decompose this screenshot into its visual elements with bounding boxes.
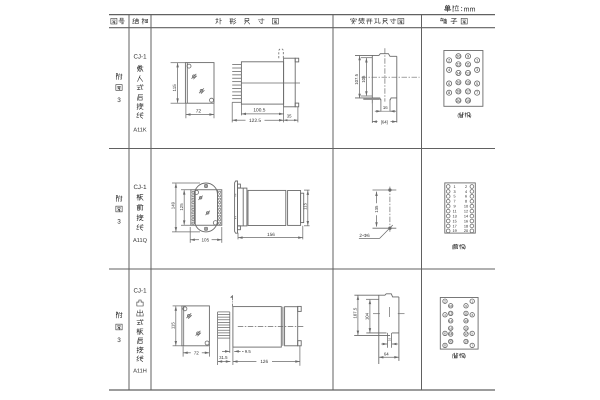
svg-text:64: 64 bbox=[384, 352, 389, 357]
svg-text:13: 13 bbox=[464, 319, 468, 323]
svg-text:3: 3 bbox=[117, 219, 121, 226]
svg-text:125: 125 bbox=[179, 203, 184, 211]
svg-text:104: 104 bbox=[365, 312, 370, 320]
svg-text:15: 15 bbox=[464, 326, 468, 330]
svg-text:A11K: A11K bbox=[133, 128, 147, 134]
svg-text:5: 5 bbox=[471, 331, 473, 335]
svg-text:19: 19 bbox=[464, 340, 468, 344]
svg-text:10: 10 bbox=[449, 304, 453, 308]
svg-text:149: 149 bbox=[171, 201, 176, 209]
svg-text:18: 18 bbox=[456, 90, 460, 94]
svg-text:): ) bbox=[470, 113, 472, 119]
svg-text:9.5: 9.5 bbox=[245, 349, 252, 354]
svg-text:1: 1 bbox=[471, 299, 473, 303]
svg-text:115: 115 bbox=[302, 202, 307, 209]
svg-text:(: ( bbox=[457, 113, 459, 119]
svg-text:16: 16 bbox=[456, 81, 460, 85]
svg-text:5: 5 bbox=[476, 82, 478, 86]
svg-text:16: 16 bbox=[383, 105, 388, 110]
svg-text:11: 11 bbox=[464, 311, 467, 315]
svg-text:20: 20 bbox=[464, 229, 468, 233]
svg-text:3: 3 bbox=[471, 313, 473, 317]
svg-text:107.5: 107.5 bbox=[353, 307, 358, 318]
svg-text:1: 1 bbox=[476, 59, 478, 63]
svg-text:72: 72 bbox=[196, 108, 202, 114]
svg-text:17: 17 bbox=[464, 332, 468, 336]
svg-text:14: 14 bbox=[464, 214, 468, 218]
svg-text:19: 19 bbox=[466, 99, 470, 103]
svg-text:115: 115 bbox=[170, 322, 175, 329]
svg-text:8: 8 bbox=[448, 91, 450, 95]
svg-text:16: 16 bbox=[449, 326, 453, 330]
svg-text:15: 15 bbox=[466, 81, 470, 85]
svg-text:18: 18 bbox=[449, 332, 453, 336]
svg-text:[64]: [64] bbox=[381, 119, 388, 124]
svg-text:156: 156 bbox=[267, 232, 275, 237]
svg-text:17: 17 bbox=[452, 224, 456, 228]
svg-text:): ) bbox=[464, 245, 466, 251]
svg-text:20: 20 bbox=[456, 99, 460, 103]
svg-text:3: 3 bbox=[476, 68, 478, 72]
svg-text:7: 7 bbox=[471, 343, 473, 347]
svg-text:31.5: 31.5 bbox=[219, 355, 228, 360]
svg-text:A11Q: A11Q bbox=[133, 238, 148, 244]
svg-text:): ) bbox=[464, 353, 466, 359]
svg-text:100.5: 100.5 bbox=[253, 108, 265, 114]
svg-text:6: 6 bbox=[448, 82, 450, 86]
svg-text:10: 10 bbox=[456, 54, 460, 58]
svg-text:107.5: 107.5 bbox=[354, 73, 359, 84]
svg-text:11: 11 bbox=[453, 210, 457, 214]
svg-text:135: 135 bbox=[374, 205, 379, 213]
svg-text:12: 12 bbox=[456, 63, 460, 67]
svg-text:14: 14 bbox=[456, 71, 460, 75]
svg-text:7: 7 bbox=[454, 200, 456, 204]
svg-text:2: 2 bbox=[444, 299, 446, 303]
svg-text:20: 20 bbox=[449, 340, 453, 344]
svg-text:2: 2 bbox=[448, 59, 450, 63]
svg-text:CJ-1: CJ-1 bbox=[133, 184, 147, 191]
svg-text:8: 8 bbox=[444, 343, 446, 347]
svg-text:8: 8 bbox=[465, 200, 467, 204]
svg-text:19: 19 bbox=[452, 229, 456, 233]
svg-text:2: 2 bbox=[465, 185, 467, 189]
svg-text:mm: mm bbox=[464, 4, 476, 13]
svg-text:5: 5 bbox=[454, 195, 456, 199]
svg-text:6: 6 bbox=[444, 331, 446, 335]
svg-text:3: 3 bbox=[454, 190, 456, 194]
svg-text:13: 13 bbox=[452, 214, 456, 218]
svg-text:4: 4 bbox=[465, 190, 467, 194]
svg-text:CJ-1: CJ-1 bbox=[133, 54, 147, 61]
svg-text:18: 18 bbox=[464, 224, 468, 228]
svg-text:16: 16 bbox=[388, 338, 392, 342]
svg-text:3: 3 bbox=[117, 337, 121, 344]
svg-text:14: 14 bbox=[449, 319, 453, 323]
svg-text:10: 10 bbox=[464, 205, 468, 209]
svg-text:105: 105 bbox=[201, 237, 209, 242]
svg-text:122.5: 122.5 bbox=[249, 118, 261, 124]
svg-text:11: 11 bbox=[466, 63, 470, 67]
svg-text:CJ-1: CJ-1 bbox=[133, 288, 147, 295]
svg-text:13: 13 bbox=[466, 71, 470, 75]
svg-text:15: 15 bbox=[452, 219, 456, 223]
svg-text:17: 17 bbox=[466, 90, 470, 94]
svg-text:A11H: A11H bbox=[133, 369, 147, 375]
svg-text:1: 1 bbox=[454, 185, 456, 189]
svg-text:72: 72 bbox=[194, 351, 200, 356]
svg-text:4: 4 bbox=[448, 68, 450, 72]
svg-text:12: 12 bbox=[464, 210, 468, 214]
svg-text:(: ( bbox=[452, 353, 454, 359]
svg-text:3: 3 bbox=[117, 97, 121, 104]
svg-text:105: 105 bbox=[361, 75, 366, 83]
svg-text:115: 115 bbox=[172, 84, 177, 92]
svg-text:126: 126 bbox=[260, 359, 268, 364]
svg-text:2-Φ6: 2-Φ6 bbox=[359, 233, 370, 238]
svg-text:35: 35 bbox=[287, 113, 292, 118]
svg-text:16: 16 bbox=[464, 219, 468, 223]
svg-text:9: 9 bbox=[465, 304, 467, 308]
svg-text:(: ( bbox=[452, 245, 454, 251]
svg-text:9: 9 bbox=[454, 205, 456, 209]
svg-text:4: 4 bbox=[444, 313, 446, 317]
svg-text:6: 6 bbox=[465, 195, 467, 199]
svg-text:9: 9 bbox=[467, 54, 469, 58]
svg-text:7: 7 bbox=[476, 91, 478, 95]
svg-text:12: 12 bbox=[449, 311, 453, 315]
